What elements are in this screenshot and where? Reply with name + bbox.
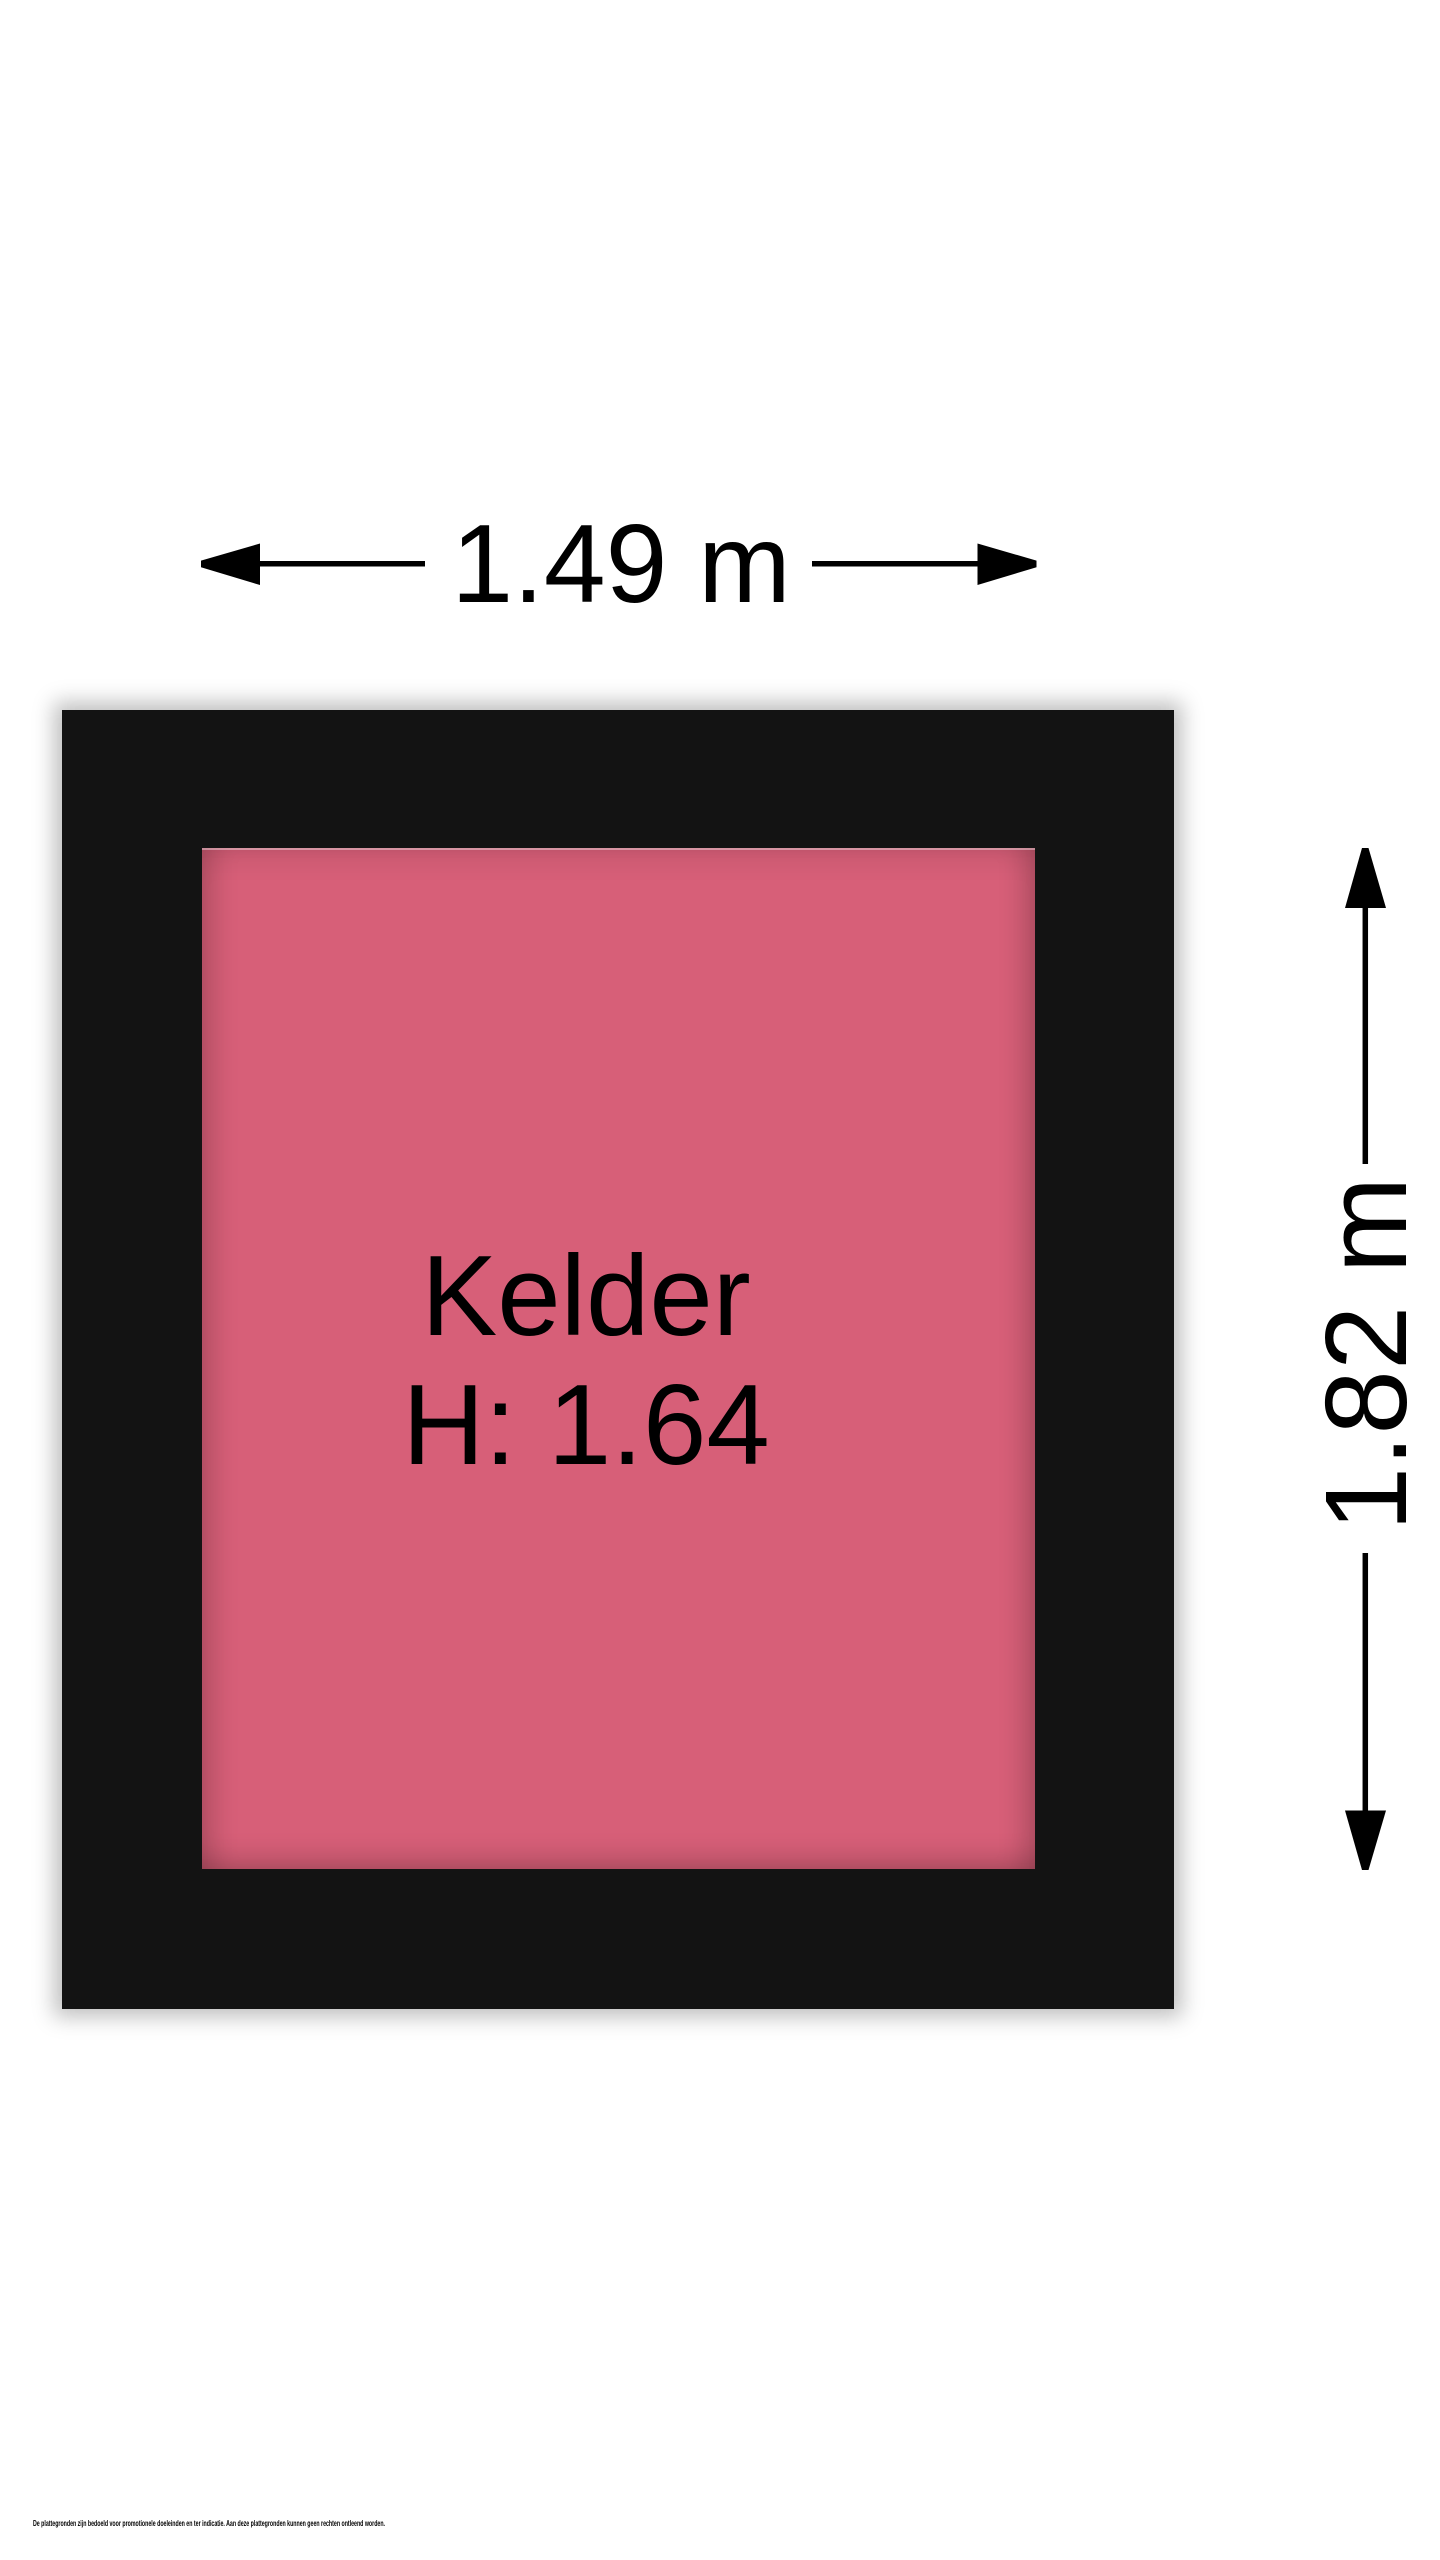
svg-text:De plattegronden zijn bedoeld: De plattegronden zijn bedoeld voor promo…: [33, 2519, 385, 2528]
